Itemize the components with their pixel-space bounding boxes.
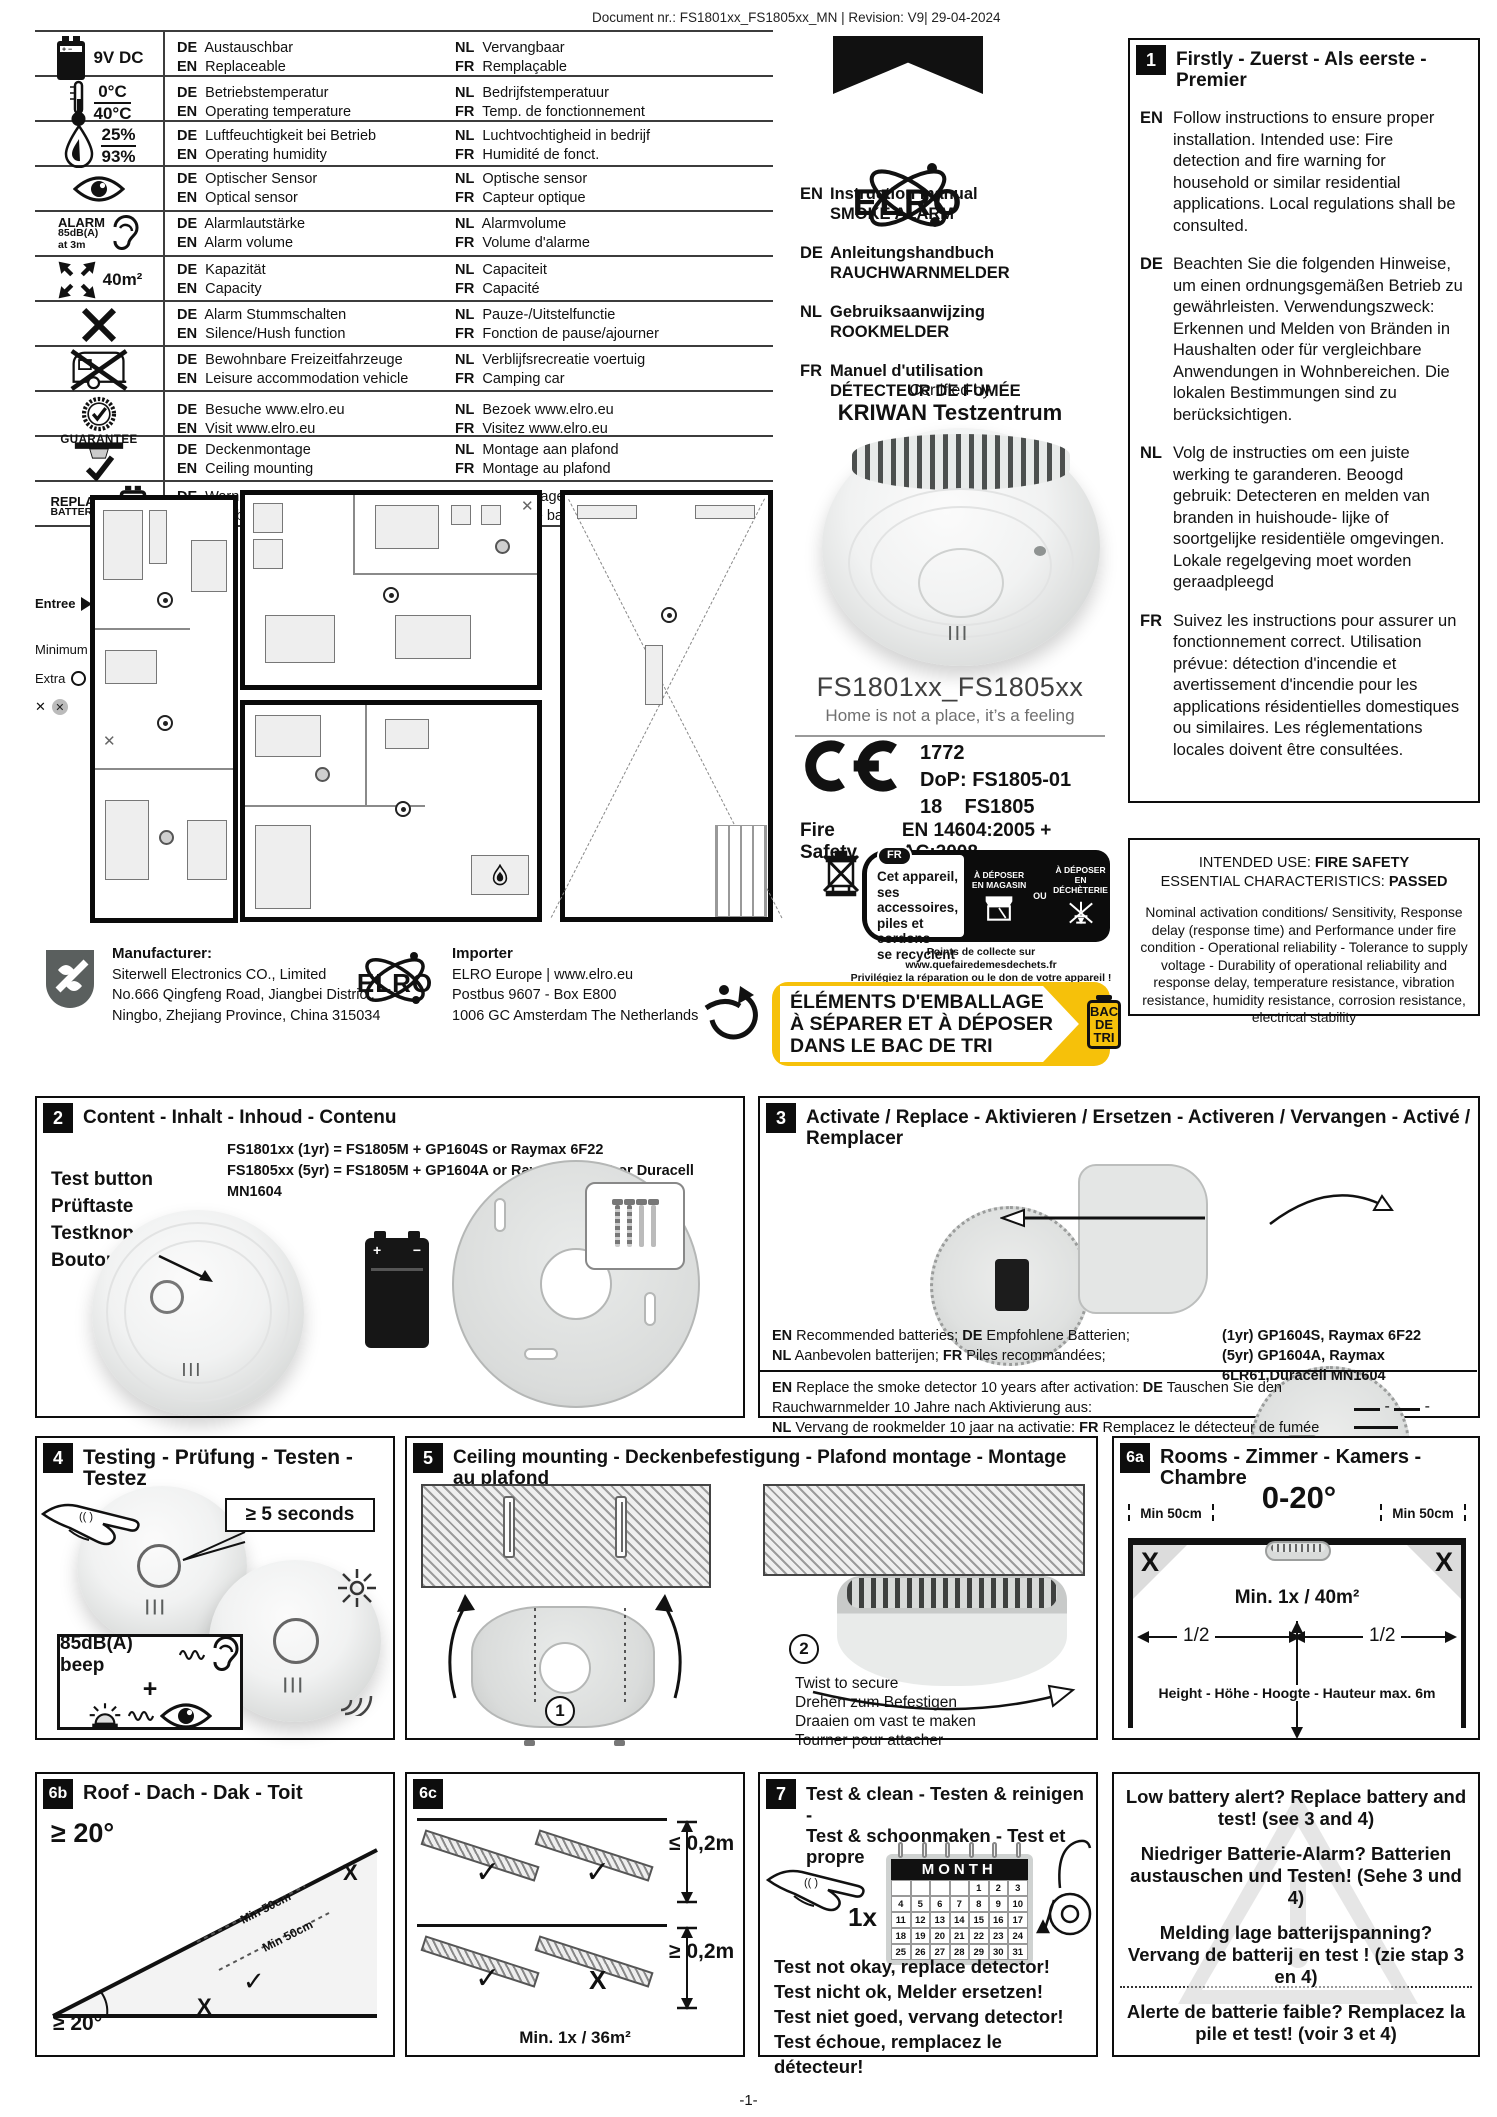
test-button-label: Test button	[51, 1166, 184, 1193]
model-config-line: FS1801xx (1yr) = FS1805M + GP1604S or Ra…	[227, 1140, 737, 1161]
manufacturer-line: Siterwell Electronics CO., Limited	[112, 965, 380, 986]
caravan-crossed-icon	[70, 349, 128, 391]
manual-title-en: ENInstruction manualSMOKE ALARM	[800, 184, 1110, 224]
section-2: 2 Content - Inhalt - Inhoud - Contenu FS…	[35, 1096, 745, 1418]
fr-recycle-label: FR Cet appareil,ses accessoires,piles et…	[862, 850, 1110, 942]
section-title: Roof - Dach - Dak - Toit	[83, 1779, 303, 1804]
ceiling-hatch	[763, 1484, 1085, 1576]
packaging-line: DANS LE BAC DE TRI	[790, 1035, 1053, 1057]
sound-waves-icon	[335, 1676, 375, 1716]
ear-icon	[210, 1635, 240, 1675]
battery-reco-line: EN Recommended batteries; DE Empfohlene …	[772, 1326, 1212, 1346]
slide-arrow	[1000, 1208, 1210, 1228]
calendar-day: 9	[989, 1896, 1009, 1912]
calendar-day: 19	[911, 1928, 931, 1944]
calendar-day	[930, 1880, 950, 1896]
replace-line: EN Replace the smoke detector 10 years a…	[772, 1378, 1332, 1418]
detector-top-view: |||	[92, 1210, 304, 1416]
instruction-paragraph-de: DEBeachten Sie die folgenden Hinweise, u…	[1140, 254, 1464, 426]
section-1: 1 Firstly - Zuerst - Als eerste - Premie…	[1128, 38, 1480, 803]
roof-diagram: Min 50cm Min 50cm X ✓ X	[47, 1820, 387, 2020]
ce-dop: DoP: FS1805-01	[920, 767, 1071, 794]
up-arrows	[435, 1588, 695, 1708]
section-5: 5 Ceiling mounting - Deckenbefestigung -…	[405, 1436, 1098, 1740]
importer-line: ELRO Europe | www.elro.eu	[452, 965, 698, 986]
manual-page: Document nr.: FS1801xx_FS1805xx_MN | Rev…	[0, 0, 1497, 2117]
instruction-paragraph-en: ENFollow instructions to ensure proper i…	[1140, 108, 1464, 237]
test-button	[918, 548, 1004, 618]
calendar-day: 14	[950, 1912, 970, 1928]
ceiling-mount-icon	[73, 439, 125, 481]
elro-banner	[833, 36, 983, 94]
alert-paragraph: Low battery alert? Replace battery and t…	[1122, 1786, 1470, 1830]
section-title: Testing - Prüfung - Testen - Testez	[83, 1443, 387, 1489]
forbidden-zone-x: X	[1435, 1547, 1453, 1578]
detector-extra-icon	[71, 671, 86, 686]
calendar-day: 18	[891, 1928, 911, 1944]
section-number: 7	[766, 1779, 796, 1809]
importer-title: Importer	[452, 945, 513, 962]
calendar-day: 21	[950, 1928, 970, 1944]
twist-instructions: Twist to secureDrehen zum BefestigenDraa…	[795, 1674, 976, 1750]
section-number: 2	[43, 1103, 73, 1133]
spec-row: GUARANTEEDE Besuche www.elro.euEN Visit …	[35, 392, 773, 437]
spec-row: + −9V DCDE AustauschbarEN ReplaceableNL …	[35, 32, 773, 77]
spec-row: DE Alarm StummschaltenEN Silence/Hush fu…	[35, 302, 773, 347]
battery-9v-icon: + −	[54, 34, 88, 82]
page-number: -1-	[0, 2092, 1497, 2109]
once-label: 1x	[848, 1902, 877, 1933]
manufacturer-title: Manufacturer:	[112, 945, 212, 962]
instruction-paragraph-nl: NLVolg de instructies om een juiste werk…	[1140, 443, 1464, 594]
test-button	[273, 1618, 319, 1664]
section-title: Firstly - Zuerst - Als eerste - Premier	[1176, 45, 1472, 91]
led-flash-icon	[337, 1568, 377, 1608]
fail-instruction: Test not okay, replace detector!	[774, 1954, 1096, 1979]
vacuum-cleaner-icon	[1036, 1836, 1094, 1948]
calendar-day: 20	[930, 1928, 950, 1944]
sound-wave-icon	[179, 1648, 205, 1662]
floor-plan-bedroom	[240, 700, 542, 922]
smoke-detector-photo: |||	[822, 428, 1100, 666]
min-distance-label: ≥ 0,2m	[669, 1940, 734, 1964]
fr-recycle-line: piles et cordons	[877, 916, 958, 947]
packaging-line: À SÉPARER ET À DÉPOSER	[790, 1013, 1053, 1035]
min-50cm-right: Min 50cm	[1380, 1504, 1466, 1521]
instruction-paragraph-fr: FRSuivez les instructions pour assurer u…	[1140, 611, 1464, 762]
siterwell-logo-icon	[42, 946, 98, 1010]
thermometer-icon	[67, 79, 89, 127]
section-4: 4 Testing - Prüfung - Testen - Testez ||…	[35, 1436, 395, 1740]
spec-row: DE DeckenmontageEN Ceiling mountingNL Mo…	[35, 437, 773, 482]
slope-angle: 0-20°	[1234, 1480, 1364, 1516]
alarm-callout: 85dB(A) beep +	[57, 1634, 243, 1730]
fail-instruction: Test nicht ok, Melder ersetzen!	[774, 1979, 1096, 2004]
twist-instruction: Draaien om vast te maken	[795, 1712, 976, 1731]
room-diagram: X X Min. 1x / 40m² 1/2 1/2 Height - Höhe…	[1128, 1538, 1466, 1728]
fr-recycle-text: FR Cet appareil,ses accessoires,piles et…	[867, 855, 964, 937]
flame-icon	[492, 864, 508, 886]
calendar-day: 5	[911, 1896, 931, 1912]
battery-type-line: (1yr) GP1604S, Raymax 6F22	[1222, 1326, 1472, 1346]
activation-date-blanks: - -	[1354, 1398, 1478, 1434]
floor-plan-apartment: ✕	[90, 495, 238, 923]
calendar-day: 22	[969, 1928, 989, 1944]
calendar-day: 13	[930, 1912, 950, 1928]
calendar-day	[950, 1880, 970, 1896]
twist-instruction: Drehen zum Befestigen	[795, 1693, 976, 1712]
calendar-day: 15	[969, 1912, 989, 1928]
manufacturer-block: Manufacturer: Siterwell Electronics CO.,…	[112, 944, 380, 1026]
step-2-marker: 2	[789, 1634, 819, 1664]
importer-line: 1006 GC Amsterdam The Netherlands	[452, 1006, 698, 1027]
svg-text:✓: ✓	[243, 1966, 265, 1996]
section-number: 6b	[43, 1779, 73, 1809]
calendar-day: 23	[989, 1928, 1009, 1944]
sound-wave-icon	[128, 1709, 154, 1723]
bac-de-tri-bin-icon: BACDETRI	[1087, 1000, 1121, 1049]
svg-text:+ −: + −	[62, 47, 72, 54]
recommended-batteries: EN Recommended batteries; DE Empfohlene …	[772, 1326, 1212, 1366]
triman-icon	[700, 978, 762, 1040]
twist-arrow	[1260, 1176, 1400, 1236]
certified-block: Certified by KRIWAN Testzentrum	[790, 382, 1110, 426]
alert-paragraph: Niedriger Batterie-Alarm? Batterien aust…	[1122, 1843, 1470, 1909]
ce-notified-body: 1772	[920, 740, 1071, 767]
section-number: 6a	[1120, 1443, 1150, 1473]
legend-cross: ✕✕	[35, 699, 68, 715]
svg-text:(( ): (( )	[79, 1511, 93, 1523]
min-50cm-left: Min 50cm	[1128, 1504, 1214, 1521]
section-number: 1	[1136, 45, 1166, 75]
min-per-area: Min. 1x / 36m²	[407, 2028, 743, 2048]
section-1-body: ENFollow instructions to ensure proper i…	[1130, 96, 1478, 761]
importer-block: Importer ELRO Europe | www.elro.euPostbu…	[452, 944, 698, 1026]
store-icon	[982, 893, 1016, 923]
section-7: 7 Test & clean - Testen & reinigen - Tes…	[758, 1772, 1098, 2057]
calendar-day: 1	[969, 1880, 989, 1896]
calendar-day: 6	[930, 1896, 950, 1912]
wall-plug	[503, 1496, 515, 1558]
manual-title-de: DEAnleitungshandbuchRAUCHWARNMELDER	[800, 243, 1110, 283]
calendar-day: 10	[1008, 1896, 1028, 1912]
calendar-day	[911, 1880, 931, 1896]
calendar-day: 11	[891, 1912, 911, 1928]
intended-use-body: Nominal activation conditions/ Sensitivi…	[1140, 904, 1468, 1027]
calendar-month-header: MONTH	[891, 1859, 1028, 1880]
ce-block: 1772 DoP: FS1805-01 18 FS1805	[800, 740, 1071, 821]
dechetterie-icon	[1065, 898, 1097, 928]
ce-year-model: 18 FS1805	[920, 794, 1071, 821]
alert-paragraph: Alerte de batterie faible? Remplacez la …	[1122, 2001, 1470, 2045]
battery-reco-line: NL Aanbevolen batterijen; FR Piles recom…	[772, 1346, 1212, 1366]
spec-row: DE Optischer SensorEN Optical sensorNL O…	[35, 167, 773, 212]
svg-text:(( ): (( )	[804, 1877, 818, 1889]
eye-icon	[160, 1701, 212, 1731]
calendar-day: 24	[1008, 1928, 1028, 1944]
calendar-day: 16	[989, 1912, 1009, 1928]
section-3: 3 Activate / Replace - Aktivieren / Erse…	[758, 1096, 1480, 1418]
floor-plans: Entree Minimum Extra ✕✕ ✕	[35, 490, 773, 930]
droplet-icon	[62, 124, 96, 168]
spec-table: + −9V DCDE AustauschbarEN ReplaceableNL …	[35, 30, 773, 527]
hold-time-callout: ≥ 5 seconds	[225, 1498, 375, 1532]
fr-badge: FR	[877, 846, 912, 866]
calendar-day: 17	[1008, 1912, 1028, 1928]
twist-instruction: Twist to secure	[795, 1674, 976, 1693]
max-distance-label: ≤ 0,2m	[669, 1832, 734, 1856]
manufacturer-line: Ningbo, Zhejiang Province, China 315034	[112, 1006, 380, 1027]
battery-types: (1yr) GP1604S, Raymax 6F22(5yr) GP1604A,…	[1222, 1326, 1472, 1386]
svg-text:X: X	[197, 1994, 212, 2019]
battery-9v: + −	[365, 1238, 429, 1348]
section-title: Activate / Replace - Aktivieren / Ersetz…	[806, 1103, 1472, 1149]
manufacturer-line: No.666 Qingfeng Road, Jiangbei District,	[112, 985, 380, 1006]
detector-on-ceiling	[1265, 1541, 1331, 1561]
bin-word: DE	[1090, 1018, 1118, 1031]
eye-icon	[73, 174, 125, 204]
floor-plan-living: ✕	[240, 490, 542, 690]
floor-plan-attic	[560, 490, 773, 922]
wall-plug	[615, 1496, 627, 1558]
svg-text:X: X	[343, 1860, 358, 1885]
document-header: Document nr.: FS1801xx_FS1805xx_MN | Rev…	[592, 10, 1000, 25]
forbidden-zone-x: X	[1141, 1547, 1159, 1578]
half-label: 1/2	[1177, 1625, 1215, 1647]
intended-use-box: INTENDED USE: FIRE SAFETY ESSENTIAL CHAR…	[1128, 838, 1480, 1016]
elro-logo-small: ELRO	[356, 944, 434, 1016]
ce-mark-icon	[800, 740, 904, 792]
bin-word: TRI	[1090, 1031, 1118, 1044]
calendar-day	[891, 1880, 911, 1896]
manual-title-nl: NLGebruiksaanwijzingROOKMELDER	[800, 302, 1110, 342]
callout-pointer	[179, 1530, 249, 1566]
beam-diagram-ok: ✓ ✓	[417, 1818, 667, 1910]
section-number: 6c	[413, 1779, 443, 1809]
fail-instructions: Test not okay, replace detector!Test nic…	[774, 1954, 1096, 2079]
fireplace	[471, 855, 529, 895]
fr-recycle-line: ses accessoires,	[877, 885, 958, 916]
section-title: Ceiling mounting - Deckenbefestigung - P…	[453, 1443, 1090, 1489]
calendar-day: 3	[1008, 1880, 1028, 1896]
section-number: 4	[43, 1443, 73, 1473]
spec-row: DE Bewohnbare FreizeitfahrzeugeEN Leisur…	[35, 347, 773, 392]
mounting-plate-side	[1078, 1164, 1208, 1314]
packaging-line: ÉLÉMENTS D'EMBALLAGE	[790, 991, 1053, 1013]
packaging-label: ÉLÉMENTS D'EMBALLAGEÀ SÉPARER ET À DÉPOS…	[772, 982, 1110, 1066]
half-label: 1/2	[1363, 1625, 1401, 1647]
spec-row: 40m²DE KapazitätEN CapacityNL Capaciteit…	[35, 257, 773, 302]
importer-line: Postbus 9607 - Box E800	[452, 985, 698, 1006]
detector-vents	[852, 434, 1070, 490]
no-detector-icon: ✕	[52, 699, 68, 715]
low-battery-box: Low battery alert? Replace battery and t…	[1112, 1772, 1480, 2057]
calendar-day: 8	[969, 1896, 989, 1912]
calendar-day: 7	[950, 1896, 970, 1912]
legend-extra: Extra	[35, 671, 86, 686]
section-number: 5	[413, 1443, 443, 1473]
cross-icon	[78, 304, 120, 346]
weee-bin-icon	[820, 848, 862, 898]
section-6b: 6b Roof - Dach - Dak - Toit ≥ 20° Min 50…	[35, 1772, 395, 2057]
section-6a: 6a Rooms - Zimmer - Kamers - Chambre 0-2…	[1112, 1436, 1480, 1740]
model-number: FS1801xx_FS1805xx	[790, 672, 1110, 703]
expand-arrows-icon	[56, 259, 98, 301]
screws-box	[585, 1182, 685, 1270]
min-per-area: Min. 1x / 40m²	[1133, 1587, 1461, 1609]
spec-row: 0°C40°CDE BetriebstemperaturEN Operating…	[35, 77, 773, 122]
alert-paragraph: Melding lage batterijspanning? Vervang d…	[1122, 1922, 1470, 1988]
fail-instruction: Test échoue, remplacez le détecteur!	[774, 2029, 1096, 2079]
measure-arrow	[675, 1926, 699, 2010]
calendar-day: 2	[989, 1880, 1009, 1896]
section-title: Content - Inhalt - Inhoud - Contenu	[83, 1103, 396, 1128]
calendar-day: 4	[891, 1896, 911, 1912]
calendar: MONTH 1234567891011121314151617181920212…	[886, 1854, 1033, 1965]
ceiling-hatch	[421, 1484, 711, 1588]
section-number: 3	[766, 1103, 796, 1133]
spec-row: ALARM85dB(A)at 3mDE AlarmlautstärkeEN Al…	[35, 212, 773, 257]
fail-instruction: Test niet goed, vervang detector!	[774, 2004, 1096, 2029]
ear-icon	[110, 214, 140, 254]
tagline: Home is not a place, it’s a feeling	[795, 706, 1105, 737]
height-label: Height - Höhe - Hoogte - Hauteur max. 6m	[1133, 1685, 1461, 1701]
section-6c: 6c ✓ ✓ ≤ 0,2m ✓ X ≥ 0,2m Min. 1x / 36m²	[405, 1772, 745, 2057]
calendar-day: 12	[911, 1912, 931, 1928]
roof-angle-bottom: ≥ 20°	[53, 2012, 102, 2036]
battery-compartment	[995, 1259, 1029, 1311]
twist-instruction: Tourner pour attacher	[795, 1731, 976, 1750]
pressing-hand-icon: (( )	[39, 1496, 149, 1562]
fr-recycle-line: Cet appareil,	[877, 869, 958, 885]
led-indicator	[1034, 546, 1046, 556]
fr-recycle-notes: Points de collecte sur www.quefairedemes…	[850, 946, 1112, 985]
beam-diagram-bad: ✓ X	[417, 1924, 667, 2016]
siren-icon	[88, 1701, 122, 1731]
guarantee-badge-icon	[79, 394, 119, 434]
spec-row: 25%93%DE Luftfeuchtigkeit bei BetriebEN …	[35, 122, 773, 167]
bin-word: BAC	[1090, 1005, 1118, 1018]
pointer-arrow	[157, 1248, 217, 1288]
